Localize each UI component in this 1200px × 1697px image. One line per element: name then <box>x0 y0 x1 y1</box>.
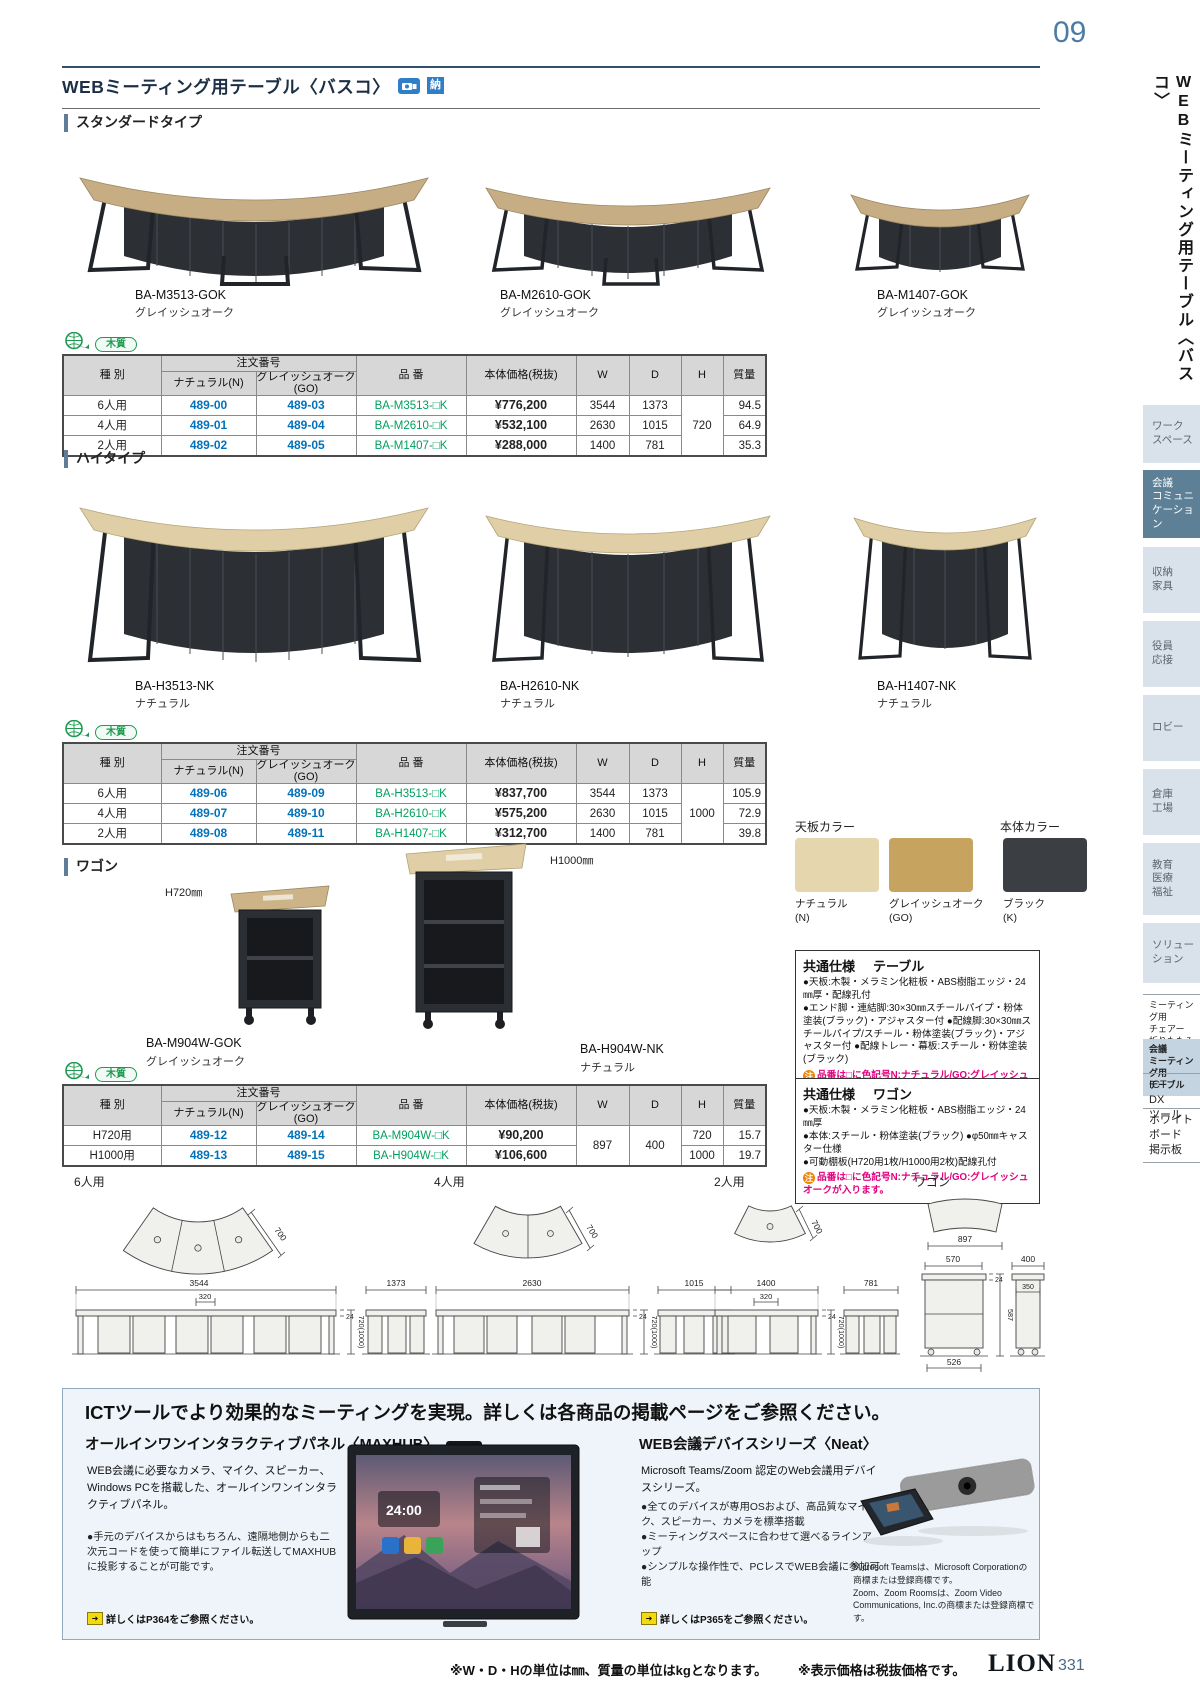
col-price: 本体価格(税抜) <box>466 1085 576 1126</box>
product-image-high-4 <box>478 480 778 681</box>
cell-h: 720 <box>681 396 723 457</box>
cell-order-go: 489-04 <box>256 416 356 436</box>
col-order: 注文番号 <box>161 1085 356 1102</box>
product-code: BA-H1407-NK <box>877 679 956 693</box>
cell-type: H720用 <box>63 1126 161 1146</box>
sidebar-tab-education[interactable]: 教育 医療 福祉 <box>1143 843 1200 915</box>
neat-bullet: ●シンプルな操作性で、PCレスでWEB会議に参加可能 <box>641 1561 881 1591</box>
swatch-black <box>1003 838 1087 892</box>
cell-order-go: 489-03 <box>256 396 356 416</box>
cell-w: 897 <box>576 1126 629 1167</box>
sidebar-vertical-title: WEBミーティング用テーブル〈バスコ〉 <box>1147 74 1195 404</box>
col-d: D <box>629 1085 681 1126</box>
wood-material-badge: 木質 <box>95 337 137 352</box>
product-color: グレイッシュオーク <box>877 304 976 320</box>
spec-subtitle: テーブル <box>873 959 924 974</box>
cell-d: 400 <box>629 1126 681 1167</box>
cell-w: 3544 <box>576 784 629 804</box>
svg-text:700: 700 <box>809 1218 825 1235</box>
product-image-wagon-1000 <box>398 838 533 1043</box>
cell-type: H1000用 <box>63 1146 161 1167</box>
page-title: WEBミーティング用テーブル〈バスコ〉 <box>62 74 390 99</box>
svg-text:700: 700 <box>584 1223 600 1241</box>
swatch-label: ブラック (K) <box>1003 898 1045 925</box>
col-natural: ナチュラル(N) <box>161 372 256 396</box>
svg-text:720(1000): 720(1000) <box>650 1316 659 1349</box>
col-item: 品 番 <box>356 1085 466 1126</box>
swatch-name: ナチュラル <box>795 898 848 912</box>
table-row: H720用 489-12 489-14 BA-M904W-□K ¥90,200 … <box>63 1126 766 1146</box>
eco-globe-icon <box>64 1062 90 1086</box>
cell-weight: 39.8 <box>723 824 766 845</box>
table-row: 2人用 489-02 489-05 BA-M1407-□K ¥288,000 1… <box>63 436 766 457</box>
svg-text:897: 897 <box>958 1234 972 1244</box>
col-price: 本体価格(税抜) <box>466 355 576 396</box>
col-item: 品 番 <box>356 743 466 784</box>
eco-globe-icon <box>64 332 90 356</box>
cell-w: 3544 <box>576 396 629 416</box>
cell-item: BA-M3513-□K <box>356 396 466 416</box>
body-color-title: 本体カラー <box>1000 818 1060 835</box>
sidebar-tab-workspace[interactable]: ワーク スペース <box>1143 405 1200 463</box>
eco-badge-row: 木質 <box>64 1062 137 1086</box>
svg-text:700: 700 <box>272 1225 289 1243</box>
col-order: 注文番号 <box>161 355 356 372</box>
section-wagon-label: ワゴン <box>64 858 118 876</box>
cell-weight: 72.9 <box>723 804 766 824</box>
height-tag: H1000㎜ <box>550 852 593 868</box>
product-color: ナチュラル <box>135 695 190 711</box>
product-code: BA-M1407-GOK <box>877 288 968 302</box>
cell-h: 720 <box>681 1126 723 1146</box>
col-h: H <box>681 1085 723 1126</box>
cell-type: 2人用 <box>63 824 161 845</box>
cell-order-go: 489-15 <box>256 1146 356 1167</box>
cell-order-go: 489-14 <box>256 1126 356 1146</box>
height-tag: H720㎜ <box>165 884 202 900</box>
cell-order-go: 489-05 <box>256 436 356 457</box>
header-sub-rule <box>62 108 1040 109</box>
svg-text:3544: 3544 <box>190 1278 209 1288</box>
cell-price: ¥106,600 <box>466 1146 576 1167</box>
camera-icon <box>398 77 420 100</box>
wood-material-badge: 木質 <box>95 725 137 740</box>
diagram-wagon: ワゴン 897 570 24 587 526 400 350 <box>900 1172 1045 1407</box>
svg-text:24:00: 24:00 <box>386 1502 422 1518</box>
table-row: 6人用 489-00 489-03 BA-M3513-□K ¥776,200 3… <box>63 396 766 416</box>
col-weight: 質量 <box>723 1085 766 1126</box>
corner-page-number: 09 <box>1053 16 1086 50</box>
footer-note-units: ※W・D・Hの単位は㎜、質量の単位はkgとなります。 <box>450 1660 767 1679</box>
section-standard-label: スタンダードタイプ <box>64 114 202 132</box>
svg-text:570: 570 <box>946 1254 960 1264</box>
svg-text:1373: 1373 <box>387 1278 406 1288</box>
cell-order-n: 489-12 <box>161 1126 256 1146</box>
product-code: BA-H3513-NK <box>135 679 214 693</box>
product-code: BA-H2610-NK <box>500 679 579 693</box>
swatch-grayish-oak <box>889 838 973 892</box>
ict-title: ICTツールでより効果的なミーティングを実現。詳しくは各商品の掲載ページをご参照… <box>85 1399 890 1425</box>
link-text: 詳しくはP365をご参照ください。 <box>660 1611 813 1626</box>
spec-title: 共通仕様 <box>803 1087 855 1102</box>
product-color: ナチュラル <box>877 695 932 711</box>
col-grayish-oak: グレイッシュオーク(GO) <box>256 1102 356 1126</box>
cell-order-go: 489-11 <box>256 824 356 845</box>
header-top-rule <box>62 66 1040 68</box>
col-type: 種 別 <box>63 355 161 396</box>
svg-text:720(1000): 720(1000) <box>837 1316 846 1349</box>
cell-weight: 105.9 <box>723 784 766 804</box>
spec-line: ●天板:木製・メラミン化粧板・ABS樹脂エッジ・24㎜厚 <box>803 1105 1032 1131</box>
footer-note-tax: ※表示価格は税抜価格です。 <box>798 1660 965 1679</box>
sidebar-item-whiteboard[interactable]: ホワイト ボード 掲示板 <box>1143 1108 1200 1163</box>
neat-bullet: ●ミーティングスペースに合わせて選べるラインアップ <box>641 1531 881 1561</box>
svg-text:24: 24 <box>639 1314 647 1321</box>
cell-w: 1400 <box>576 824 629 845</box>
spec-line: ●天板:木製・メラミン化粧板・ABS樹脂エッジ・24㎜厚・配線孔付 <box>803 977 1032 1003</box>
eco-badge-row: 木質 <box>64 332 137 356</box>
cell-type: 6人用 <box>63 396 161 416</box>
neat-body: Microsoft Teams/Zoom 認定のWeb会議用デバイスシリーズ。 <box>641 1463 877 1497</box>
wagon-spec-table: 種 別 注文番号 品 番 本体価格(税抜) W D H 質量 ナチュラル(N) … <box>62 1084 767 1167</box>
col-w: W <box>576 743 629 784</box>
col-type: 種 別 <box>63 743 161 784</box>
neat-link[interactable]: ➜ 詳しくはP365をご参照ください。 <box>641 1611 813 1626</box>
cell-price: ¥532,100 <box>466 416 576 436</box>
spec-line: ●可動棚板(H720用1枚/H1000用2枚)配線孔付 <box>803 1157 1032 1170</box>
product-color: グレイッシュオーク <box>135 304 234 320</box>
cell-w: 2630 <box>576 416 629 436</box>
svg-text:526: 526 <box>947 1357 961 1367</box>
swatch-code: (N) <box>795 912 848 926</box>
cell-weight: 19.7 <box>723 1146 766 1167</box>
cell-d: 1373 <box>629 784 681 804</box>
brand-logo: LION <box>988 1650 1056 1678</box>
maxhub-body: WEB会議に必要なカメラ、マイク、スピーカー、Windows PCを搭載した、オ… <box>87 1463 337 1514</box>
eco-globe-icon <box>64 720 90 744</box>
col-h: H <box>681 743 723 784</box>
maxhub-bullet: ●手元のデバイスからはもちろん、遠隔地側からも二次元コードを使って簡単にファイル… <box>87 1531 339 1576</box>
cell-w: 1400 <box>576 436 629 457</box>
cell-w: 2630 <box>576 804 629 824</box>
product-code: BA-M2610-GOK <box>500 288 591 302</box>
svg-text:587: 587 <box>1006 1309 1015 1321</box>
cell-price: ¥575,200 <box>466 804 576 824</box>
col-w: W <box>576 355 629 396</box>
cell-weight: 94.5 <box>723 396 766 416</box>
sidebar-tab-warehouse[interactable]: 倉庫 工場 <box>1143 769 1200 835</box>
cell-item: BA-H2610-□K <box>356 804 466 824</box>
col-w: W <box>576 1085 629 1126</box>
standard-spec-table: 種 別 注文番号 品 番 本体価格(税抜) W D H 質量 ナチュラル(N) … <box>62 354 767 457</box>
svg-text:24: 24 <box>995 1277 1003 1284</box>
cell-item: BA-M1407-□K <box>356 436 466 457</box>
col-h: H <box>681 355 723 396</box>
swatch-natural <box>795 838 879 892</box>
cell-order-n: 489-07 <box>161 804 256 824</box>
cell-d: 1015 <box>629 804 681 824</box>
product-image-high-2 <box>848 488 1043 678</box>
product-image-standard-4 <box>478 152 778 293</box>
svg-text:400: 400 <box>1021 1254 1035 1264</box>
cell-price: ¥90,200 <box>466 1126 576 1146</box>
swatch-label: ナチュラル (N) <box>795 898 848 925</box>
col-natural: ナチュラル(N) <box>161 1102 256 1126</box>
eco-badge-row: 木質 <box>64 720 137 744</box>
swatch-name: ブラック <box>1003 898 1045 912</box>
spec-line: ●エンド脚・連結脚:30×30㎜スチールパイプ・粉体塗装(ブラック)・アジャスタ… <box>803 1003 1032 1067</box>
product-color: ナチュラル <box>500 695 555 711</box>
col-grayish-oak: グレイッシュオーク(GO) <box>256 372 356 396</box>
neat-bullet: ●全てのデバイスが専用OSおよび、高品質なマイク、スピーカー、カメラを標準搭載 <box>641 1501 881 1531</box>
cell-d: 1373 <box>629 396 681 416</box>
cell-price: ¥288,000 <box>466 436 576 457</box>
spec-box-title: 共通仕様テーブル <box>803 956 1032 975</box>
diagram-6person: 6人用 700 3544 320 24 720(1000) 1373 <box>68 1172 433 1392</box>
swatch-name: グレイッシュオーク <box>889 898 984 912</box>
trademark-line: Microsoft Teamsは、Microsoft Corporationの商… <box>853 1561 1035 1587</box>
trademark-note: Microsoft Teamsは、Microsoft Corporationの商… <box>853 1561 1035 1625</box>
svg-text:4人用: 4人用 <box>434 1175 465 1189</box>
product-image-standard-2 <box>845 165 1035 292</box>
cell-h: 1000 <box>681 1146 723 1167</box>
svg-text:2人用: 2人用 <box>714 1175 745 1189</box>
spec-title: 共通仕様 <box>803 959 855 974</box>
cell-item: BA-M904W-□K <box>356 1126 466 1146</box>
link-arrow-icon: ➜ <box>87 1612 103 1625</box>
link-text: 詳しくはP364をご参照ください。 <box>106 1611 259 1626</box>
product-code: BA-H904W-NK <box>580 1042 664 1056</box>
svg-text:ワゴン: ワゴン <box>914 1174 950 1189</box>
product-image-standard-6 <box>72 138 437 293</box>
product-code: BA-M3513-GOK <box>135 288 226 302</box>
product-image-high-6 <box>72 468 437 681</box>
spec-subtitle: ワゴン <box>873 1087 912 1102</box>
cell-order-n: 489-00 <box>161 396 256 416</box>
cell-order-go: 489-10 <box>256 804 356 824</box>
sidebar-tab-solution[interactable]: ソリュー ション <box>1143 923 1200 983</box>
cell-weight: 15.7 <box>723 1126 766 1146</box>
col-d: D <box>629 355 681 396</box>
swatch-code: (GO) <box>889 912 984 926</box>
cell-order-n: 489-01 <box>161 416 256 436</box>
product-color: ナチュラル <box>580 1059 635 1075</box>
cell-price: ¥776,200 <box>466 396 576 416</box>
col-order: 注文番号 <box>161 743 356 760</box>
col-item: 品 番 <box>356 355 466 396</box>
table-row: 4人用 489-01 489-04 BA-M2610-□K ¥532,100 2… <box>63 416 766 436</box>
cell-h: 1000 <box>681 784 723 845</box>
cell-order-n: 489-08 <box>161 824 256 845</box>
table-row: 6人用 489-06 489-09 BA-H3513-□K ¥837,700 3… <box>63 784 766 804</box>
col-natural: ナチュラル(N) <box>161 760 256 784</box>
cell-order-n: 489-02 <box>161 436 256 457</box>
svg-text:2630: 2630 <box>523 1278 542 1288</box>
svg-text:1015: 1015 <box>685 1278 704 1288</box>
sidebar-tab-meeting-communication[interactable]: 会議 コミュニ ケーション <box>1143 470 1200 538</box>
cell-d: 781 <box>629 436 681 457</box>
product-image-wagon-720 <box>225 880 335 1035</box>
diagram-4person: 4人用 700 2630 24 720(1000) 1015 <box>428 1172 735 1392</box>
cell-type: 4人用 <box>63 416 161 436</box>
sidebar-tab-lobby[interactable]: ロビー <box>1143 695 1200 761</box>
col-price: 本体価格(税抜) <box>466 743 576 784</box>
col-grayish-oak: グレイッシュオーク(GO) <box>256 760 356 784</box>
svg-text:320: 320 <box>760 1292 773 1301</box>
maxhub-panel-image: 24:00 <box>346 1441 581 1636</box>
col-type: 種 別 <box>63 1085 161 1126</box>
cell-price: ¥837,700 <box>466 784 576 804</box>
section-high-label: ハイタイプ <box>64 450 145 468</box>
svg-text:6人用: 6人用 <box>74 1175 105 1189</box>
svg-text:720(1000): 720(1000) <box>357 1316 366 1349</box>
cell-d: 1015 <box>629 416 681 436</box>
col-d: D <box>629 743 681 784</box>
page-number: 331 <box>1058 1657 1085 1675</box>
wood-material-badge: 木質 <box>95 1067 137 1082</box>
product-color: グレイッシュオーク <box>500 304 599 320</box>
svg-text:24: 24 <box>346 1314 354 1321</box>
delivery-badge: 納 <box>427 77 444 94</box>
maxhub-link[interactable]: ➜ 詳しくはP364をご参照ください。 <box>87 1611 259 1626</box>
col-weight: 質量 <box>723 743 766 784</box>
svg-text:350: 350 <box>1022 1284 1034 1291</box>
sidebar-tab-storage[interactable]: 収納 家具 <box>1143 547 1200 613</box>
svg-text:24: 24 <box>828 1314 836 1321</box>
link-arrow-icon: ➜ <box>641 1612 657 1625</box>
trademark-line: Zoom、Zoom Roomsは、Zoom Video Communicatio… <box>853 1587 1035 1625</box>
sidebar-tab-executive[interactable]: 役員 応接 <box>1143 621 1200 687</box>
cell-weight: 35.3 <box>723 436 766 457</box>
neat-title: WEB会議デバイスシリーズ〈Neat〉 <box>639 1433 877 1454</box>
cell-weight: 64.9 <box>723 416 766 436</box>
cell-order-n: 489-13 <box>161 1146 256 1167</box>
svg-text:320: 320 <box>199 1292 212 1301</box>
cell-order-go: 489-09 <box>256 784 356 804</box>
cell-order-n: 489-06 <box>161 784 256 804</box>
table-row: 4人用 489-07 489-10 BA-H2610-□K ¥575,200 2… <box>63 804 766 824</box>
cell-type: 4人用 <box>63 804 161 824</box>
diagram-2person: 2人用 700 1400 320 24 720(1000) 781 <box>710 1172 900 1392</box>
swatch-label: グレイッシュオーク (GO) <box>889 898 984 925</box>
high-spec-table: 種 別 注文番号 品 番 本体価格(税抜) W D H 質量 ナチュラル(N) … <box>62 742 767 845</box>
neat-device-image <box>853 1439 1038 1559</box>
top-color-title: 天板カラー <box>795 818 855 835</box>
cell-d: 781 <box>629 824 681 845</box>
cell-item: BA-M2610-□K <box>356 416 466 436</box>
swatch-code: (K) <box>1003 912 1045 926</box>
ict-promo-box: ICTツールでより効果的なミーティングを実現。詳しくは各商品の掲載ページをご参照… <box>62 1388 1040 1640</box>
svg-text:1400: 1400 <box>757 1278 776 1288</box>
spec-box-title: 共通仕様ワゴン <box>803 1084 1032 1103</box>
product-color: グレイッシュオーク <box>146 1053 245 1069</box>
col-weight: 質量 <box>723 355 766 396</box>
cell-item: BA-H904W-□K <box>356 1146 466 1167</box>
svg-text:781: 781 <box>864 1278 878 1288</box>
product-code: BA-M904W-GOK <box>146 1036 242 1050</box>
cell-type: 6人用 <box>63 784 161 804</box>
cell-item: BA-H3513-□K <box>356 784 466 804</box>
spec-line: ●本体:スチール・粉体塗装(ブラック) ●φ50㎜キャスター仕様 <box>803 1131 1032 1157</box>
